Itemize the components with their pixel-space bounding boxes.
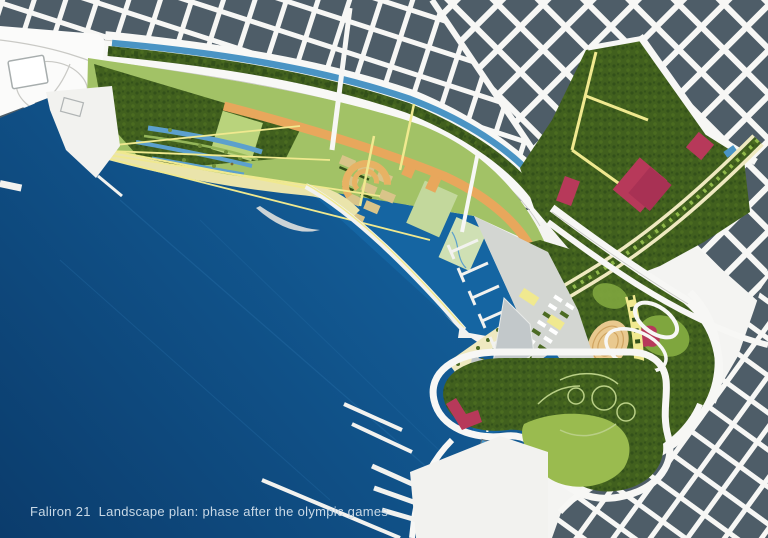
plan-canvas [0, 0, 768, 538]
landscape-plan-map: Faliron 21 Landscape plan: phase after t… [0, 0, 768, 538]
outlined-stadium-building [8, 55, 48, 89]
plan-caption: Faliron 21 Landscape plan: phase after t… [30, 504, 388, 519]
